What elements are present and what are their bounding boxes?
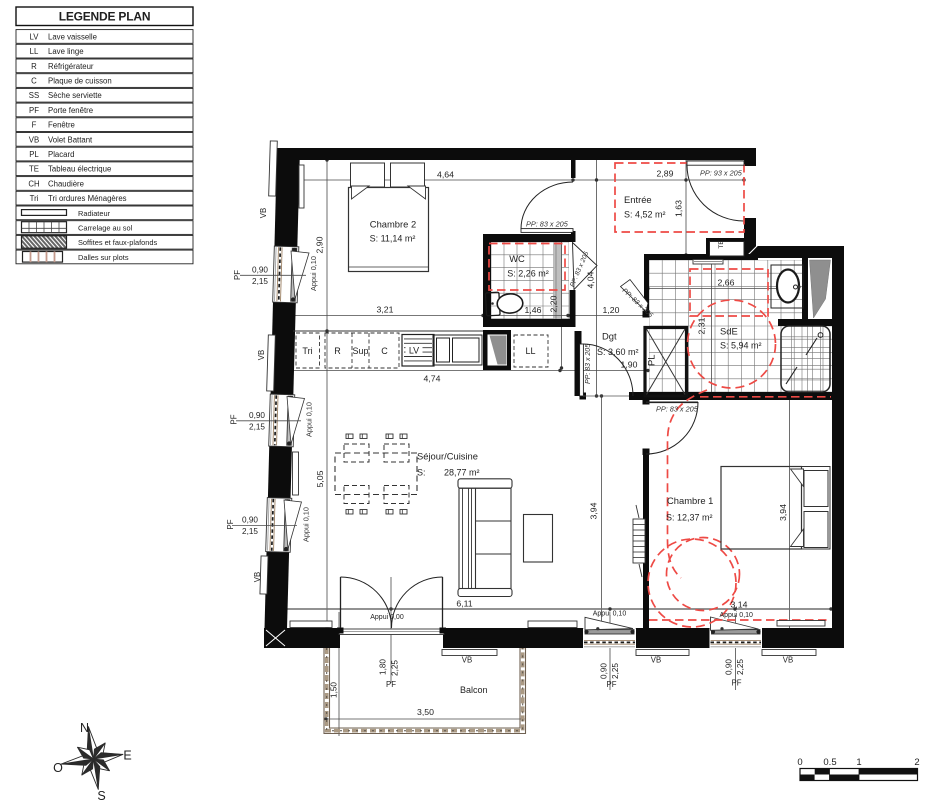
- svg-text:Lave vaisselle: Lave vaisselle: [48, 32, 97, 41]
- svg-text:Volet Battant: Volet Battant: [48, 135, 93, 144]
- svg-text:Porte fenêtre: Porte fenêtre: [48, 106, 93, 115]
- svg-text:2,89: 2,89: [657, 169, 674, 179]
- svg-text:R: R: [334, 346, 341, 356]
- svg-text:S: 4,52 m²: S: 4,52 m²: [624, 210, 666, 220]
- svg-text:3,94: 3,94: [778, 504, 788, 521]
- svg-text:PL: PL: [29, 150, 39, 159]
- svg-text:PL: PL: [646, 355, 657, 366]
- svg-text:VB: VB: [259, 208, 268, 218]
- svg-text:Appui 0,10: Appui 0,10: [305, 402, 314, 437]
- svg-text:2,15: 2,15: [252, 277, 268, 286]
- svg-text:0.5: 0.5: [823, 757, 836, 768]
- svg-text:PF: PF: [226, 519, 235, 529]
- svg-text:Placard: Placard: [48, 150, 74, 159]
- svg-text:3,50: 3,50: [417, 707, 434, 717]
- svg-text:Lave linge: Lave linge: [48, 47, 84, 56]
- svg-text:Fenêtre: Fenêtre: [48, 121, 75, 130]
- svg-text:LL: LL: [30, 47, 39, 56]
- svg-text:Tri ordures Ménagères: Tri ordures Ménagères: [48, 194, 127, 203]
- svg-text:4,74: 4,74: [424, 374, 441, 384]
- svg-text:S:: S:: [417, 468, 426, 478]
- svg-text:PF: PF: [230, 414, 239, 424]
- svg-text:O: O: [53, 761, 63, 775]
- svg-text:PF: PF: [29, 106, 39, 115]
- svg-text:Appui 0,10: Appui 0,10: [309, 256, 318, 291]
- svg-text:PF: PF: [607, 680, 617, 689]
- svg-text:Réfrigérateur: Réfrigérateur: [48, 62, 94, 71]
- svg-text:S: 11,14 m²: S: 11,14 m²: [370, 234, 416, 244]
- svg-text:Séjour/Cuisine: Séjour/Cuisine: [417, 451, 478, 462]
- svg-text:6,11: 6,11: [456, 599, 472, 609]
- svg-text:Chaudière: Chaudière: [48, 179, 84, 188]
- svg-text:S: 12,37 m²: S: 12,37 m²: [666, 513, 713, 523]
- svg-text:PF: PF: [732, 679, 742, 688]
- svg-text:VB: VB: [651, 656, 661, 665]
- svg-text:VB: VB: [257, 350, 266, 360]
- svg-text:2,15: 2,15: [249, 422, 265, 431]
- svg-text:VB: VB: [253, 572, 262, 582]
- svg-text:1,90: 1,90: [621, 360, 638, 370]
- svg-text:PF: PF: [386, 680, 396, 689]
- svg-text:Entrée: Entrée: [624, 194, 652, 205]
- svg-text:2: 2: [914, 757, 919, 768]
- svg-text:Plaque de cuisson: Plaque de cuisson: [48, 77, 112, 86]
- svg-text:0,90: 0,90: [600, 663, 609, 679]
- svg-text:S: S: [97, 789, 105, 800]
- svg-text:PP: 83 x 205: PP: 83 x 205: [526, 220, 569, 229]
- svg-text:Tri: Tri: [30, 194, 39, 203]
- svg-text:1,46: 1,46: [525, 305, 542, 315]
- svg-text:S: 2,26 m²: S: 2,26 m²: [507, 269, 549, 279]
- svg-text:Dalles sur plots: Dalles sur plots: [78, 253, 129, 262]
- svg-text:2,25: 2,25: [611, 663, 620, 679]
- svg-text:4,64: 4,64: [437, 170, 454, 180]
- svg-text:Soffites et faux-plafonds: Soffites et faux-plafonds: [78, 238, 157, 247]
- svg-text:Sup: Sup: [352, 346, 368, 356]
- svg-text:C: C: [381, 346, 388, 356]
- svg-text:Dgt: Dgt: [602, 331, 617, 342]
- svg-text:0,90: 0,90: [249, 411, 265, 420]
- svg-text:2,25: 2,25: [736, 659, 745, 675]
- svg-text:PP: 83 x 205: PP: 83 x 205: [656, 405, 699, 414]
- svg-text:Appui 0,10: Appui 0,10: [719, 612, 753, 619]
- svg-text:VB: VB: [29, 135, 39, 144]
- svg-text:SS: SS: [29, 91, 39, 100]
- svg-text:VB: VB: [783, 656, 793, 665]
- svg-text:1,80: 1,80: [379, 659, 388, 675]
- svg-text:F: F: [32, 121, 37, 130]
- svg-text:VB: VB: [462, 656, 472, 665]
- svg-text:PP: 93 x 205: PP: 93 x 205: [700, 169, 743, 178]
- svg-text:Appui 0,10: Appui 0,10: [593, 610, 627, 617]
- svg-text:Tableau électrique: Tableau électrique: [48, 165, 111, 174]
- svg-text:Chambre 2: Chambre 2: [370, 219, 416, 230]
- svg-text:S: 5,94 m²: S: 5,94 m²: [720, 341, 762, 351]
- svg-text:Appui 0,10: Appui 0,10: [302, 507, 311, 542]
- svg-text:Carrelage au sol: Carrelage au sol: [78, 224, 133, 233]
- svg-text:2,15: 2,15: [242, 527, 258, 536]
- svg-text:LEGENDE PLAN: LEGENDE PLAN: [59, 10, 151, 24]
- svg-text:28,77 m²: 28,77 m²: [444, 468, 480, 478]
- svg-text:Tri: Tri: [302, 346, 312, 356]
- svg-text:2,20: 2,20: [549, 295, 559, 312]
- svg-text:1,50: 1,50: [330, 682, 339, 698]
- svg-text:0,90: 0,90: [725, 659, 734, 675]
- svg-text:R: R: [31, 62, 37, 71]
- svg-text:SdE: SdE: [720, 326, 738, 337]
- svg-text:PF: PF: [233, 270, 242, 280]
- svg-text:4,04: 4,04: [586, 271, 596, 288]
- svg-text:0,90: 0,90: [242, 516, 258, 525]
- svg-text:1,20: 1,20: [603, 305, 620, 315]
- svg-text:Radiateur: Radiateur: [78, 209, 111, 218]
- svg-text:2,90: 2,90: [315, 236, 325, 253]
- svg-text:2,25: 2,25: [391, 660, 400, 676]
- svg-text:LV: LV: [409, 346, 419, 356]
- svg-text:CH: CH: [28, 179, 39, 188]
- svg-text:3,94: 3,94: [589, 502, 599, 519]
- svg-text:Chambre 1: Chambre 1: [667, 495, 713, 506]
- svg-text:LL: LL: [525, 346, 535, 356]
- svg-text:Appui 0,00: Appui 0,00: [370, 614, 404, 621]
- svg-text:5,05: 5,05: [315, 470, 325, 487]
- svg-text:1,63: 1,63: [674, 200, 684, 217]
- svg-text:TE: TE: [29, 165, 39, 174]
- svg-text:C: C: [31, 77, 37, 86]
- svg-text:0,90: 0,90: [252, 265, 268, 274]
- svg-text:N: N: [80, 721, 89, 735]
- svg-text:WC: WC: [509, 253, 525, 264]
- svg-text:2,31: 2,31: [697, 317, 707, 334]
- svg-text:2,66: 2,66: [718, 278, 735, 288]
- svg-text:0: 0: [797, 757, 802, 768]
- svg-text:3,14: 3,14: [731, 600, 748, 610]
- svg-text:TE: TE: [718, 240, 725, 249]
- svg-text:S: 3,60 m²: S: 3,60 m²: [597, 347, 639, 357]
- svg-text:E: E: [123, 749, 131, 763]
- svg-text:Balcon: Balcon: [460, 685, 488, 695]
- svg-text:LV: LV: [30, 32, 40, 41]
- svg-text:3,21: 3,21: [377, 305, 394, 315]
- svg-text:1: 1: [856, 757, 861, 768]
- svg-text:PP: 83 x 205: PP: 83 x 205: [585, 344, 592, 384]
- svg-text:Sèche serviette: Sèche serviette: [48, 91, 102, 100]
